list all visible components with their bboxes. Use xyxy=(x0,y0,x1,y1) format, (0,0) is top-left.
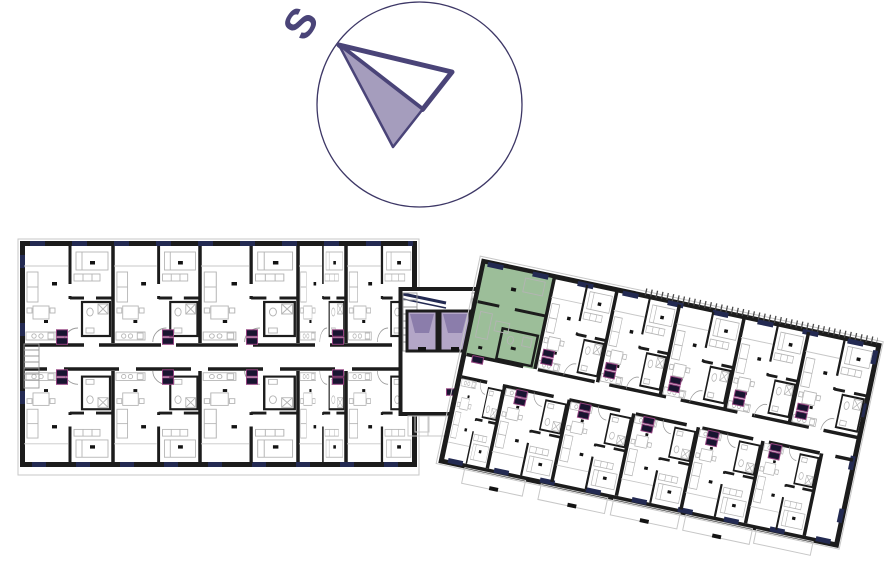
left-wing[interactable] xyxy=(18,239,429,475)
compass-rose: S xyxy=(273,0,522,207)
compass-south-label: S xyxy=(273,0,328,48)
elevator-1 xyxy=(407,311,437,351)
floorplan-page: S xyxy=(0,0,885,582)
floorplan-canvas: S xyxy=(0,0,885,582)
left-wing-outer-wall xyxy=(23,244,415,465)
right-wing[interactable] xyxy=(433,256,883,564)
